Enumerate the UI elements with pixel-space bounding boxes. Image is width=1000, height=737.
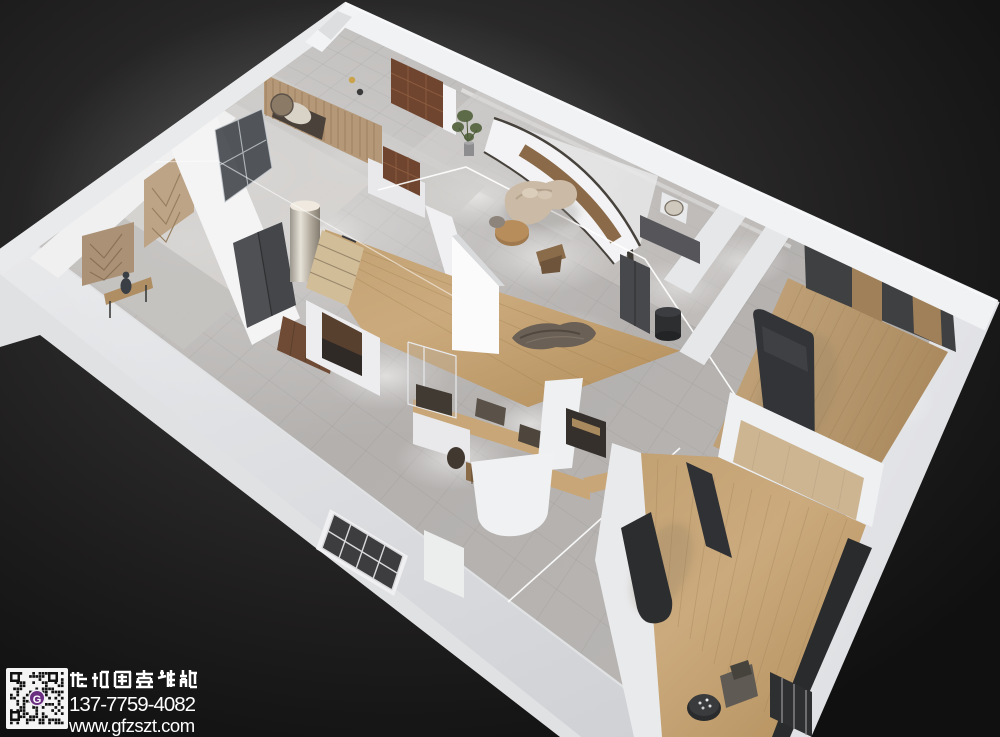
svg-text:www.gfzszt.com: www.gfzszt.com: [68, 715, 195, 736]
svg-text:137-7759-4082: 137-7759-4082: [69, 693, 196, 716]
svg-text:G: G: [33, 694, 42, 706]
